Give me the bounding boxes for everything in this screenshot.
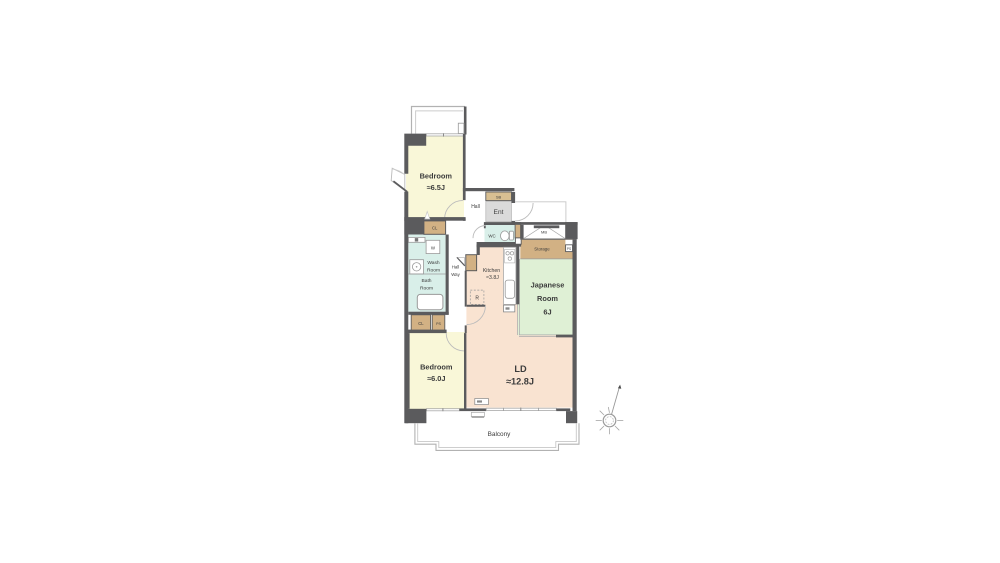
svg-text:Japanese: Japanese (531, 280, 565, 289)
svg-text:Room: Room (427, 267, 440, 273)
svg-text:≈3.8J: ≈3.8J (486, 275, 499, 281)
svg-text:Storage: Storage (534, 247, 550, 252)
svg-text:SB: SB (496, 194, 502, 199)
svg-text:LD: LD (514, 364, 527, 374)
svg-text:Way: Way (451, 272, 460, 277)
svg-text:Room: Room (537, 294, 558, 303)
svg-text:Bedroom: Bedroom (420, 172, 453, 181)
svg-text:PS: PS (436, 322, 441, 326)
svg-text:Balcony: Balcony (488, 431, 512, 438)
svg-text:CL: CL (432, 225, 438, 230)
svg-text:≈6.5J: ≈6.5J (427, 183, 445, 192)
svg-text:6J: 6J (543, 307, 551, 316)
svg-text:Kitchen: Kitchen (483, 268, 500, 274)
svg-text:Wash: Wash (427, 260, 440, 266)
svg-text:CL: CL (418, 321, 424, 326)
svg-text:Bedroom: Bedroom (420, 363, 453, 372)
svg-text:Hall: Hall (471, 204, 480, 210)
svg-text:≈6.0J: ≈6.0J (427, 374, 445, 383)
svg-text:MB: MB (541, 229, 547, 234)
svg-text:WC: WC (488, 233, 495, 238)
svg-text:Ent: Ent (494, 209, 504, 216)
svg-text:Hall: Hall (452, 265, 460, 270)
svg-text:≈12.8J: ≈12.8J (506, 377, 534, 387)
svg-text:R: R (475, 296, 479, 302)
svg-text:Bath: Bath (421, 278, 431, 284)
svg-text:PS: PS (567, 247, 571, 251)
svg-text:Room: Room (420, 285, 433, 291)
